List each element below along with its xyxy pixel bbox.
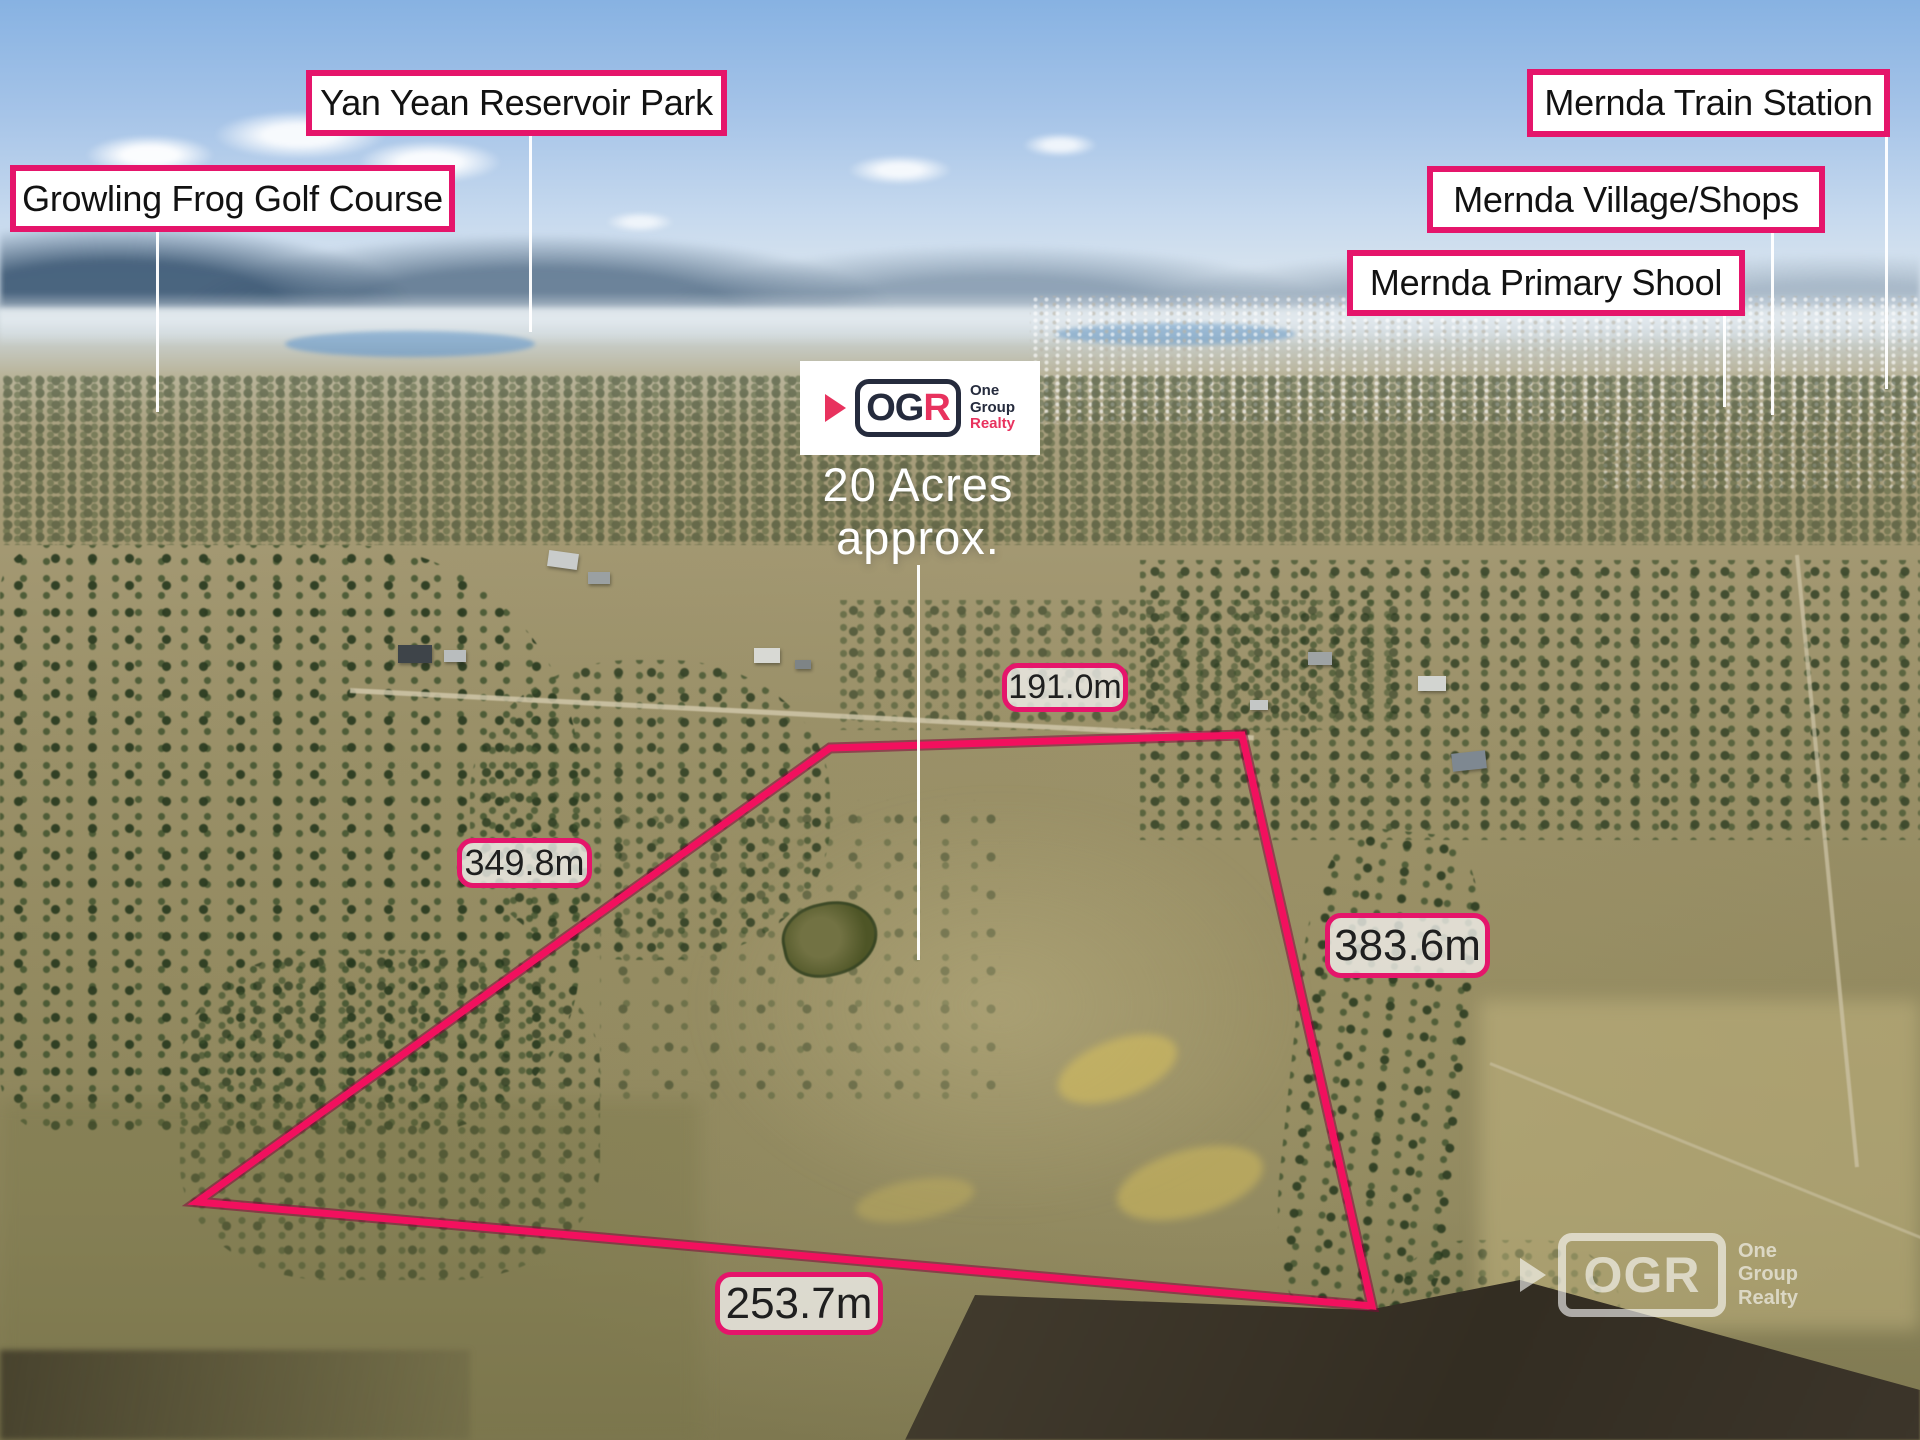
measurement-value: 191.0m	[1008, 668, 1121, 707]
label-yan-yean-reservoir-park: Yan Yean Reservoir Park	[306, 70, 727, 136]
measurement-left-boundary: 349.8m	[457, 838, 592, 888]
play-triangle-icon	[825, 394, 846, 422]
label-mernda-village-shops: Mernda Village/Shops	[1427, 166, 1825, 233]
connector-line-yan-yean	[529, 136, 532, 332]
ogr-watermark: OGR One Group Realty	[1520, 1233, 1798, 1317]
boundary-outline	[197, 735, 1372, 1306]
ogr-logo-frame: OGR	[855, 379, 961, 437]
label-growling-frog-golf-course: Growling Frog Golf Course	[10, 165, 455, 232]
area-annotation: 20 Acres approx.	[823, 458, 1014, 564]
tagline-group: Group	[970, 400, 1015, 417]
watermark-tagline-realty: Realty	[1738, 1287, 1798, 1311]
watermark-logo-frame: OGR	[1558, 1233, 1726, 1317]
connector-line-primary-school	[1723, 316, 1726, 407]
ogr-wordmark-og: OG	[866, 387, 923, 429]
ogr-logo-card: OGR One Group Realty	[800, 361, 1040, 455]
label-text: Yan Yean Reservoir Park	[320, 82, 713, 124]
watermark-wordmark: OGR	[1584, 1246, 1701, 1304]
ogr-wordmark-r: R	[923, 387, 949, 429]
measurement-value: 383.6m	[1334, 921, 1481, 971]
connector-line-property-center	[917, 565, 920, 960]
label-text: Mernda Train Station	[1544, 82, 1872, 124]
connector-line-train-station	[1885, 137, 1888, 389]
watermark-tagline-one: One	[1738, 1240, 1798, 1264]
area-line1: 20 Acres	[823, 458, 1014, 511]
label-text: Growling Frog Golf Course	[22, 178, 443, 220]
ogr-tagline: One Group Realty	[970, 383, 1015, 433]
label-mernda-primary-school: Mernda Primary Shool	[1347, 250, 1745, 316]
measurement-top-boundary: 191.0m	[1002, 663, 1128, 712]
area-line2: approx.	[823, 511, 1014, 564]
watermark-tagline: One Group Realty	[1738, 1240, 1798, 1311]
label-text: Mernda Village/Shops	[1453, 179, 1799, 221]
measurement-right-boundary: 383.6m	[1325, 913, 1490, 978]
measurement-bottom-boundary: 253.7m	[715, 1272, 883, 1335]
connector-line-village-shops	[1771, 233, 1774, 415]
watermark-play-triangle-icon	[1520, 1258, 1546, 1292]
tagline-realty: Realty	[970, 416, 1015, 433]
label-mernda-train-station: Mernda Train Station	[1527, 69, 1890, 137]
label-text: Mernda Primary Shool	[1370, 262, 1722, 304]
connector-line-growling-frog	[156, 232, 159, 412]
watermark-tagline-group: Group	[1738, 1263, 1798, 1287]
ogr-wordmark: OGR	[866, 387, 950, 430]
measurement-value: 349.8m	[464, 842, 584, 884]
tagline-one: One	[970, 383, 1015, 400]
measurement-value: 253.7m	[726, 1279, 873, 1329]
